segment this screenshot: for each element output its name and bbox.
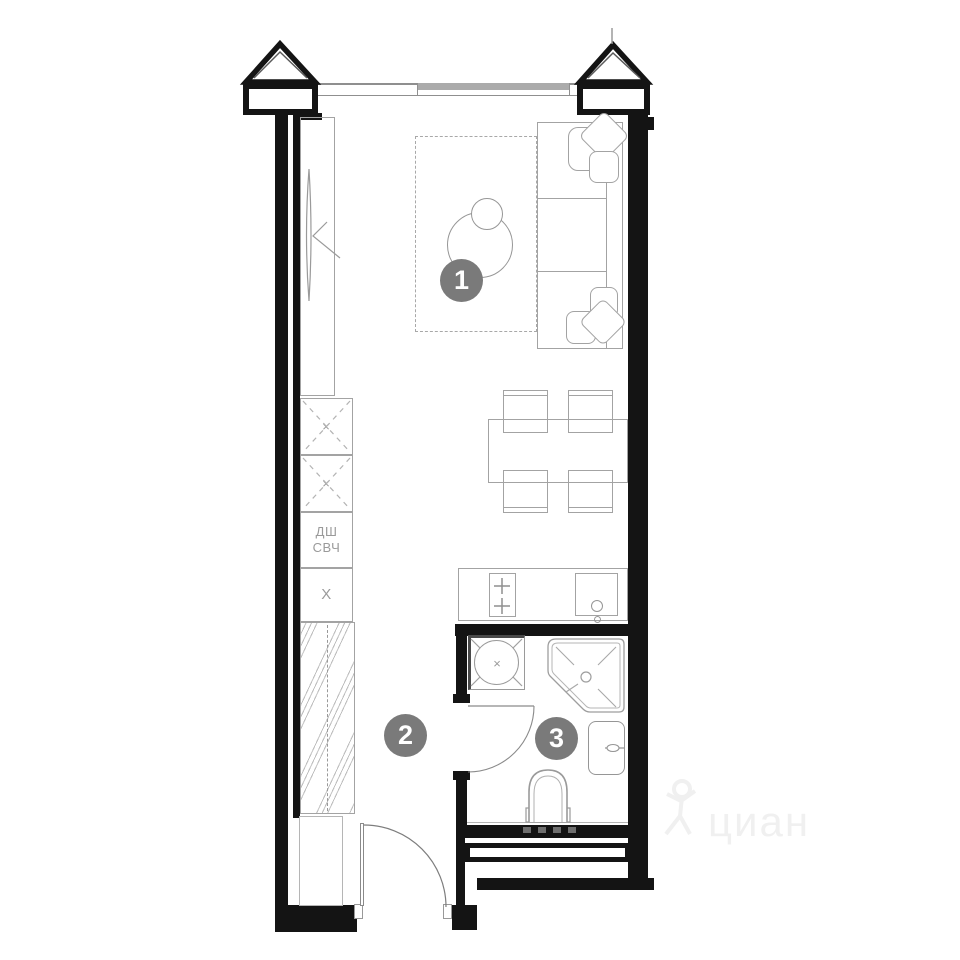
bathroom-door-jamb-bottom [453, 771, 470, 780]
fridge-cabinet: Х [300, 568, 353, 622]
setback-bottom-wall [477, 878, 648, 890]
oven-microwave-cabinet: ДШ СВЧ [300, 512, 353, 568]
right-wall-step [646, 117, 654, 130]
window-sash [418, 83, 570, 90]
cabinet-cross: × [318, 475, 334, 491]
room-2-badge: 2 [384, 714, 427, 757]
pier-triangle-right-icon [580, 45, 647, 82]
bathroom-sink [588, 721, 625, 775]
room-1-badge: 1 [440, 259, 483, 302]
window-divider-left [417, 83, 418, 96]
shower-drain [581, 672, 591, 682]
oven-label: ДШ [316, 524, 338, 540]
vent-duct [465, 843, 630, 862]
tv-unit [300, 117, 335, 396]
watermark-person-icon [666, 781, 695, 834]
left-inner-partition [293, 113, 300, 818]
hall-right-wall-extension [456, 838, 465, 905]
toilet-bowl-inner [534, 776, 562, 822]
bathroom-floor-line [467, 822, 628, 823]
bathroom-door-jamb-top [453, 694, 470, 703]
shower-inner-line [552, 643, 620, 708]
washer-cross: × [489, 655, 505, 671]
fridge-label: Х [321, 587, 332, 603]
shower-rays [556, 647, 616, 707]
floor-plan: ДШ СВЧ Х × × × 1 2 3 циан [0, 0, 960, 960]
entry-door-leaf [360, 823, 364, 906]
toilet-bowl [529, 770, 567, 822]
entry-jamb-left [354, 904, 363, 919]
wall-foot [452, 905, 477, 930]
entry-door-swing-arc [364, 825, 446, 907]
window-divider-right [569, 83, 570, 96]
sofa-pillow [589, 151, 619, 183]
bathroom-left-wall-upper [456, 636, 467, 695]
shoe-cabinet [299, 816, 343, 906]
room-3-badge: 3 [535, 717, 578, 760]
shower [548, 639, 624, 712]
pier-block-left [243, 83, 318, 115]
sink-drain [591, 600, 603, 612]
pier-triangle-left-icon [246, 44, 315, 82]
watermark-text: циан [708, 798, 810, 846]
bathroom-door-swing-arc [468, 706, 534, 772]
cabinet-cross: × [318, 418, 334, 434]
sink-faucet-dot [594, 616, 601, 623]
microwave-label: СВЧ [313, 540, 341, 556]
toilet-base [526, 808, 570, 822]
sofa-seat-divider [537, 271, 606, 272]
wardrobe-rail [327, 625, 328, 811]
entry-jamb-right [443, 904, 452, 919]
hob [489, 573, 516, 617]
pier-block-right [577, 83, 650, 115]
setback-wall-nub [648, 878, 654, 890]
bottom-left-wall [275, 905, 357, 932]
dining-table [488, 419, 628, 483]
coffee-table-small-icon [471, 198, 503, 230]
bathroom-bottom-wall [465, 825, 630, 838]
right-outer-wall [628, 115, 648, 890]
sofa-seat-divider [537, 198, 606, 199]
pier-triangle-right-inner [588, 53, 640, 78]
pier-triangle-left-inner [254, 52, 307, 78]
left-outer-wall [275, 113, 288, 932]
